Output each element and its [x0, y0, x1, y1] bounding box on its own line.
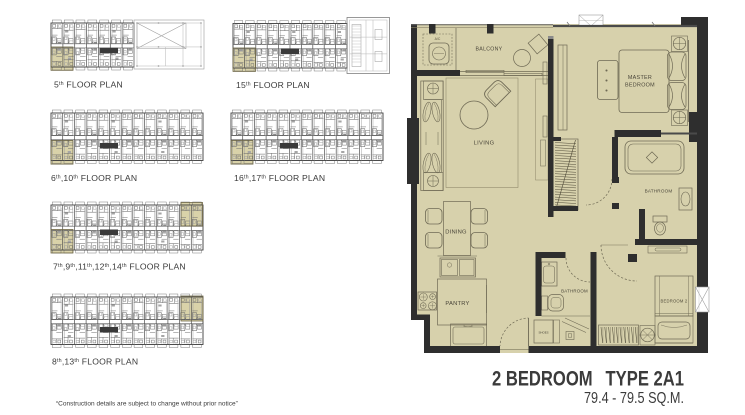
svg-text:DINING: DINING [445, 230, 467, 236]
svg-text:MASTER: MASTER [628, 75, 652, 81]
svg-text:BALCONY: BALCONY [476, 47, 503, 53]
svg-text:8th​,13th​ FLOOR PLAN: 8th​,13th​ FLOOR PLAN [52, 357, 138, 367]
svg-text:BEDROOM 2: BEDROOM 2 [661, 299, 688, 304]
svg-text:BATHROOM: BATHROOM [561, 289, 588, 294]
svg-text:“Construction details are subj: “Construction details are subject to cha… [56, 400, 238, 407]
svg-text:A/C: A/C [435, 37, 441, 41]
svg-text:LIVING: LIVING [474, 141, 495, 147]
svg-text:BATHROOM: BATHROOM [645, 189, 673, 194]
svg-text:6th​,10th​ FLOOR PLAN: 6th​,10th​ FLOOR PLAN [51, 173, 137, 183]
svg-text:BEDROOM: BEDROOM [625, 83, 655, 89]
svg-text:2 BEDROOM TYPE 2A1: 2 BEDROOM TYPE 2A1 [492, 367, 684, 391]
svg-text:SHOES: SHOES [538, 331, 548, 335]
svg-text:PANTRY: PANTRY [445, 301, 469, 307]
svg-text:79.4 - 79.5 SQ.M.: 79.4 - 79.5 SQ.M. [584, 390, 684, 407]
svg-text:5th​ FLOOR PLAN: 5th​ FLOOR PLAN [54, 80, 123, 90]
